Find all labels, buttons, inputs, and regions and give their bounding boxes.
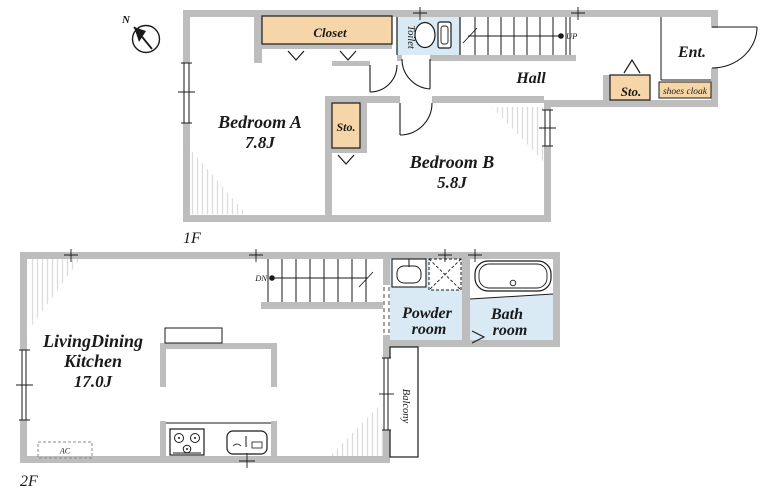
- ldk-label-line1: LivingDining: [42, 331, 143, 351]
- hatch-ldk-bottomright: [330, 402, 383, 456]
- ac-label: AC: [59, 447, 71, 456]
- door-arc-bedroom-b: [400, 103, 432, 135]
- north-label: N: [121, 14, 131, 26]
- entrance-label: Ent.: [677, 44, 706, 61]
- ldk-size: 17.0J: [74, 372, 113, 391]
- hall-label: Hall: [515, 70, 546, 87]
- entrance-door-opening: [710, 28, 720, 68]
- storage-bedroom-label: Sto.: [336, 120, 355, 134]
- shoes-cloak-label: shoes cloak: [663, 87, 708, 97]
- bathtub-icon: [475, 261, 551, 291]
- powder-room-label-line1: Powder: [401, 305, 453, 322]
- bath-room-label-line1: Bath: [490, 306, 523, 323]
- stairs-1f: [463, 17, 570, 55]
- ldk-window: [16, 350, 33, 420]
- compass-icon: N: [121, 14, 159, 53]
- hatch-bedroom-a: [191, 150, 246, 214]
- floor1-label: 1F: [183, 230, 201, 247]
- floor2-label: 2F: [20, 473, 38, 490]
- storage-hall-label: Sto.: [621, 84, 642, 99]
- kitchen-sink-icon: [227, 431, 267, 454]
- floorplan-drawing: N: [0, 0, 766, 503]
- ac-unit-box: AC: [38, 442, 92, 458]
- floorplan-page: N: [0, 0, 766, 503]
- closet-label: Closet: [313, 25, 347, 40]
- powder-room-label-line2: room: [412, 321, 447, 338]
- kitchen-counter-top: [165, 328, 222, 343]
- bedroom-b-size: 5.8J: [437, 173, 467, 192]
- dn-label: DN: [254, 273, 268, 283]
- bath-room-label-line2: room: [493, 322, 528, 339]
- toilet-label: Toilet: [405, 25, 416, 50]
- bedroom-b-label: Bedroom B: [409, 152, 495, 172]
- stairs-2f: [268, 259, 373, 302]
- balcony-label: Balcony: [400, 389, 411, 424]
- door-arc-bedroom-a: [370, 65, 397, 92]
- washer-space-icon: [429, 259, 461, 290]
- bedroom-a-size: 7.8J: [245, 133, 275, 152]
- stove-icon: [170, 429, 204, 455]
- floor1-plan: Closet Toilet UP Hall Ent. Sto. shoes cl…: [178, 7, 757, 247]
- powder-opening-dashed: [384, 287, 389, 333]
- bedroom-a-label: Bedroom A: [217, 112, 302, 132]
- vanity-sink-icon: [392, 259, 426, 287]
- hatch-bedroom-b: [492, 107, 544, 162]
- up-label: UP: [566, 31, 577, 41]
- hatch-ldk-topleft: [28, 259, 80, 331]
- floor2-plan: AC DN LivingDining Kitchen 17.0J Powder …: [16, 249, 560, 490]
- ldk-label-line2: Kitchen: [63, 351, 122, 371]
- door-arc-toilet: [402, 59, 430, 89]
